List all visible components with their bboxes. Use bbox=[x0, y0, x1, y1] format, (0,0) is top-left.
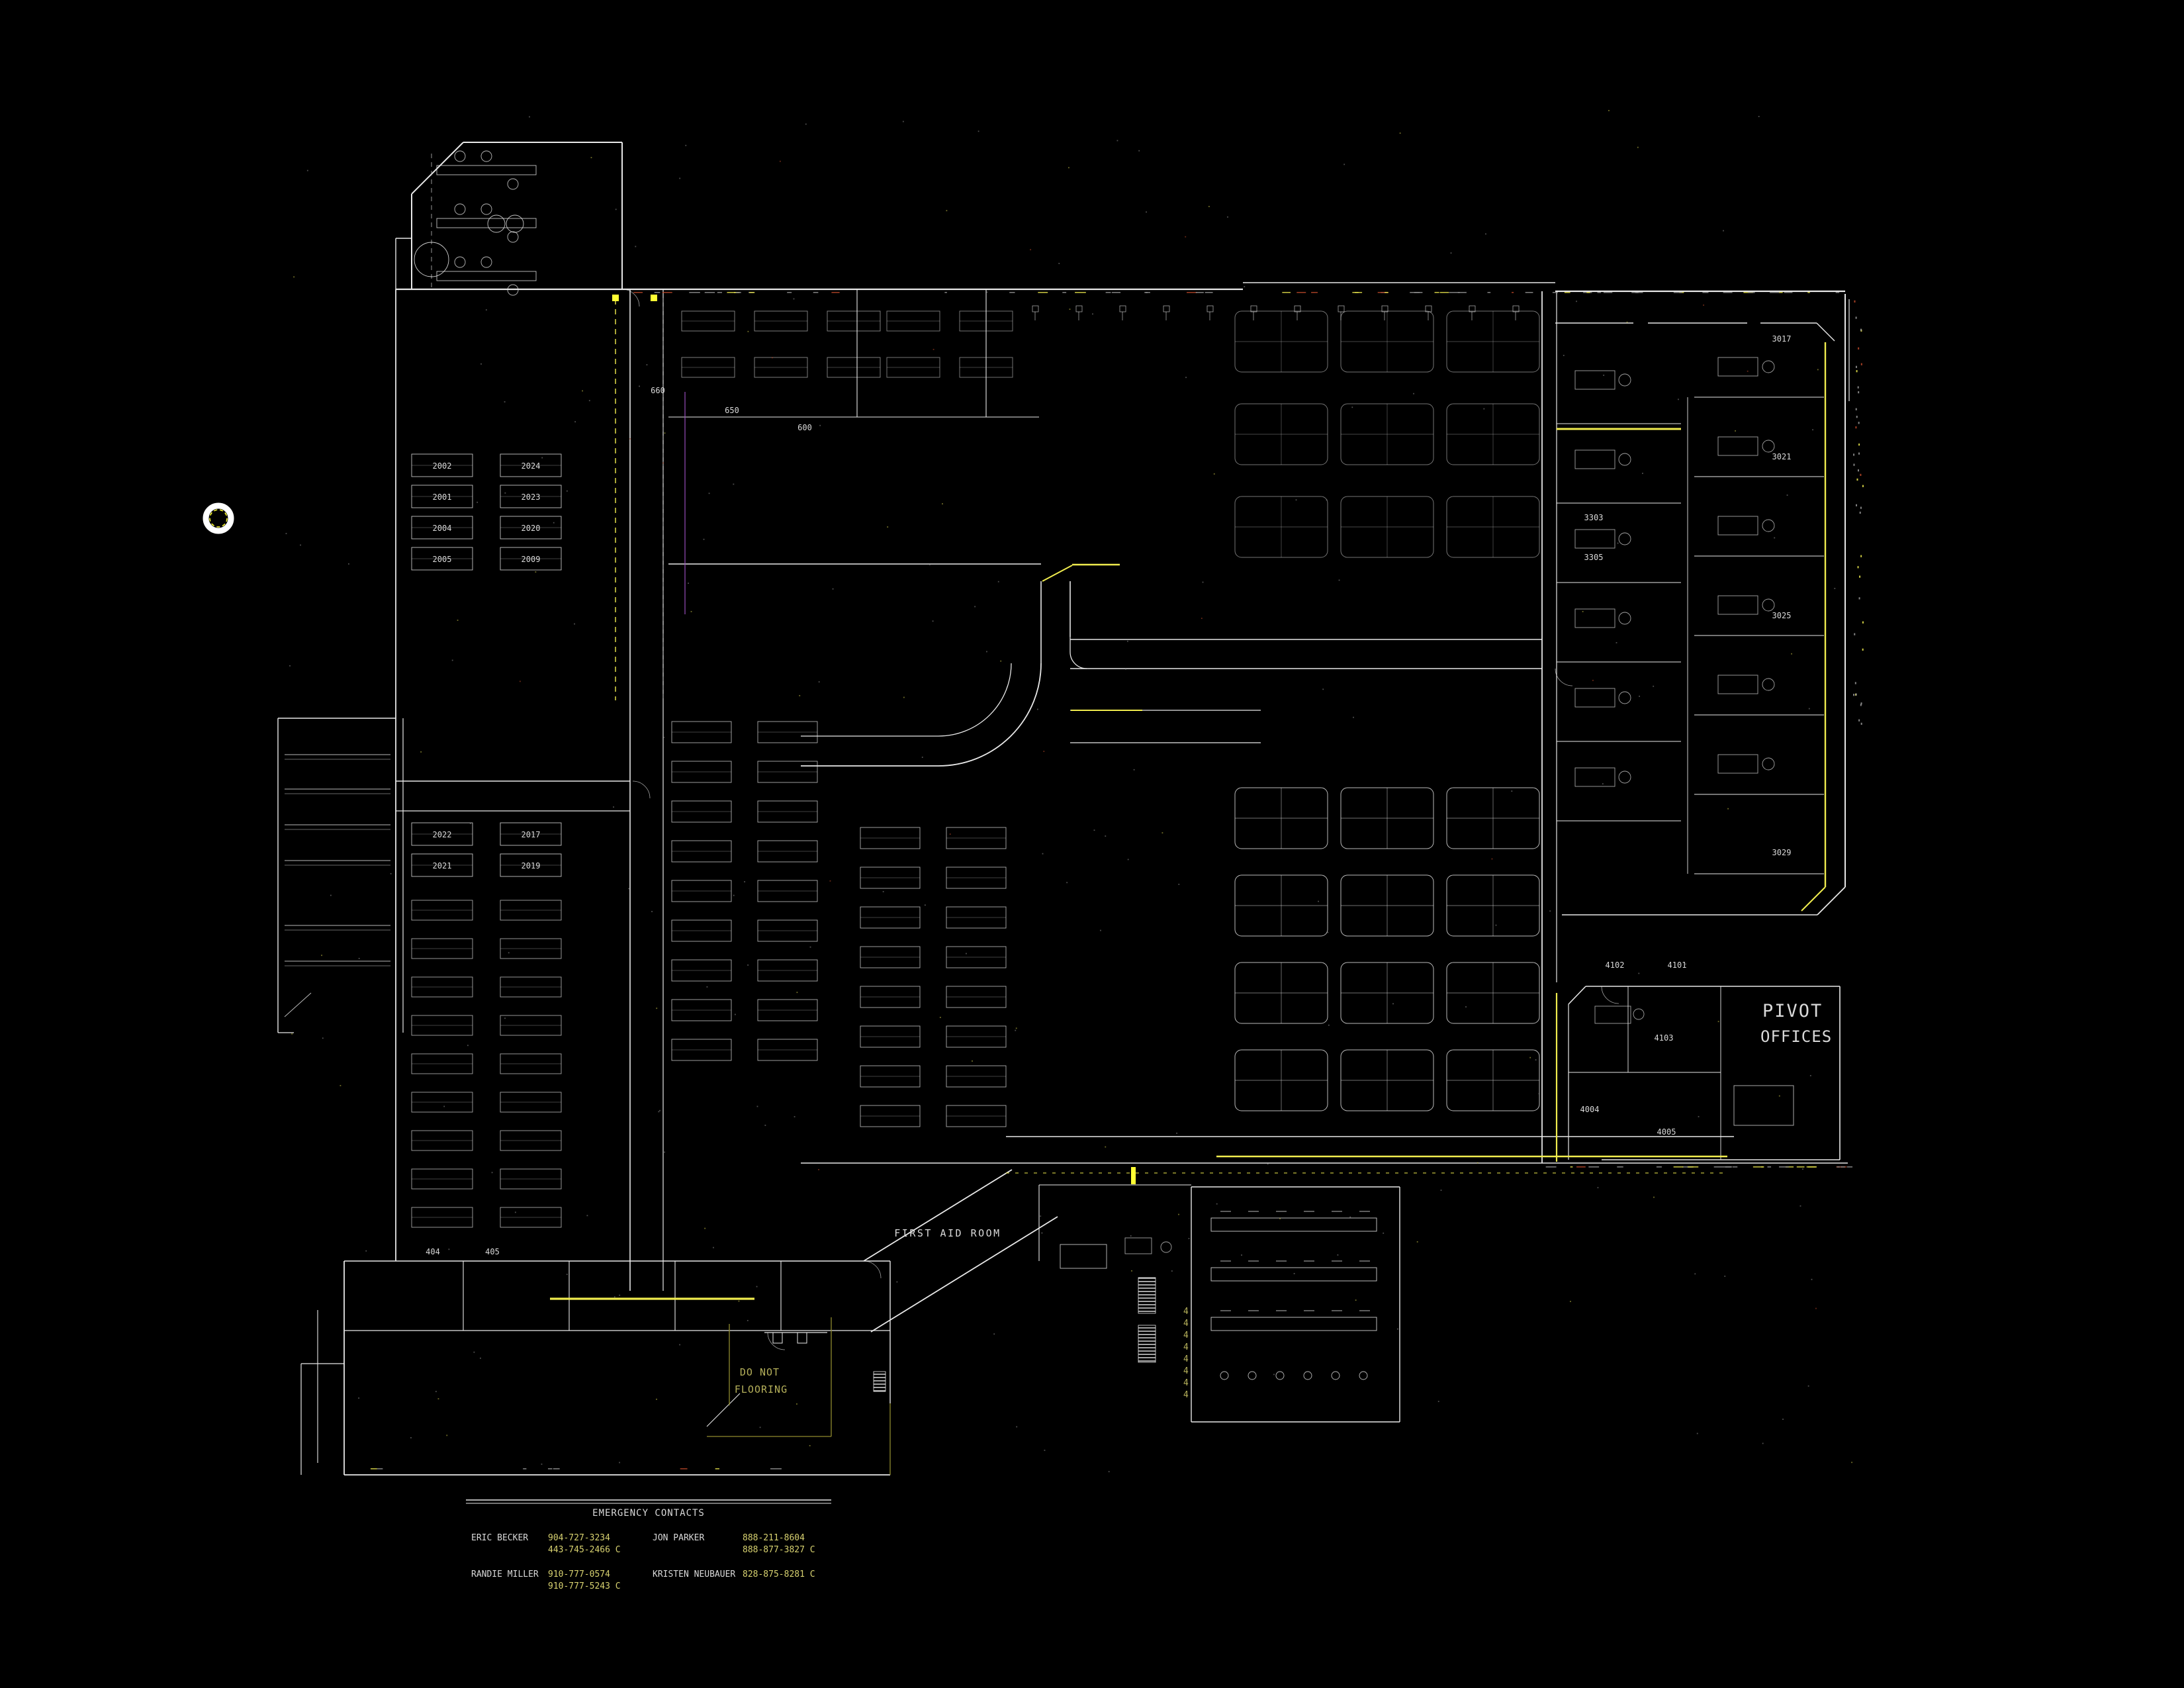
room-label: 2024 bbox=[522, 461, 541, 471]
room-label: DO NOT bbox=[740, 1366, 780, 1378]
contact-phone: 888-211-8604 bbox=[743, 1533, 805, 1543]
room-label: 3025 bbox=[1772, 611, 1792, 620]
contact-name: ERIC BECKER bbox=[471, 1533, 528, 1543]
room-label: 405 bbox=[485, 1247, 500, 1256]
room-label: 404 bbox=[426, 1247, 440, 1256]
contact-phone: 904-727-3234 bbox=[548, 1533, 610, 1543]
room-label: 2019 bbox=[522, 861, 541, 870]
room-label: 2017 bbox=[522, 830, 541, 839]
contact-name: KRISTEN NEUBAUER bbox=[653, 1570, 735, 1579]
stair-count-glyph: 4 bbox=[1183, 1331, 1189, 1340]
room-label: 660 bbox=[651, 386, 665, 395]
stair-count-glyph: 4 bbox=[1183, 1390, 1189, 1400]
stair-count-glyph: 4 bbox=[1183, 1342, 1189, 1352]
room-label: 2023 bbox=[522, 492, 541, 502]
room-label: 2001 bbox=[433, 492, 452, 502]
contacts-title: EMERGENCY CONTACTS bbox=[592, 1508, 705, 1519]
room-label: 600 bbox=[797, 423, 812, 432]
stair-count-glyph: 4 bbox=[1183, 1307, 1189, 1317]
room-label: 4005 bbox=[1657, 1127, 1676, 1137]
room-label: OFFICES bbox=[1760, 1027, 1832, 1046]
contact-name: RANDIE MILLER bbox=[471, 1570, 539, 1579]
room-label: 650 bbox=[725, 406, 739, 415]
room-label: 2004 bbox=[433, 524, 452, 533]
contact-phone: 888-877-3827 C bbox=[743, 1545, 815, 1555]
stair-count-glyph: 4 bbox=[1183, 1319, 1189, 1329]
room-label: 3303 bbox=[1584, 513, 1604, 522]
room-label: FIRST AID ROOM bbox=[894, 1227, 1001, 1239]
room-label: 3029 bbox=[1772, 848, 1792, 857]
room-label: 2002 bbox=[433, 461, 452, 471]
contact-phone: 828-875-8281 C bbox=[743, 1570, 815, 1579]
floorplan-canvas: FIRST AID ROOMPIVOTOFFICESDO NOTFLOORING… bbox=[0, 0, 2184, 1688]
stair-count-glyph: 4 bbox=[1183, 1366, 1189, 1376]
room-label: PIVOT bbox=[1762, 1001, 1823, 1021]
stair-count-glyph: 4 bbox=[1183, 1378, 1189, 1388]
room-label: 4101 bbox=[1668, 961, 1687, 970]
background bbox=[0, 0, 2184, 1688]
room-label: 4102 bbox=[1606, 961, 1625, 970]
room-label: 3305 bbox=[1584, 553, 1604, 562]
contact-phone: 910-777-0574 bbox=[548, 1570, 610, 1579]
room-label: 2020 bbox=[522, 524, 541, 533]
stair-count-glyph: 4 bbox=[1183, 1354, 1189, 1364]
room-label: 2022 bbox=[433, 830, 452, 839]
room-label: FLOORING bbox=[735, 1383, 788, 1395]
room-label: 2009 bbox=[522, 555, 541, 564]
room-label: 4004 bbox=[1580, 1105, 1600, 1114]
room-label: 3017 bbox=[1772, 334, 1792, 344]
contact-name: JON PARKER bbox=[653, 1533, 704, 1543]
contact-phone: 443-745-2466 C bbox=[548, 1545, 621, 1555]
room-label: 4103 bbox=[1655, 1033, 1674, 1043]
room-label: 2021 bbox=[433, 861, 452, 870]
room-label: 3021 bbox=[1772, 452, 1792, 461]
contact-phone: 910-777-5243 C bbox=[548, 1581, 621, 1591]
room-label: 2005 bbox=[433, 555, 452, 564]
